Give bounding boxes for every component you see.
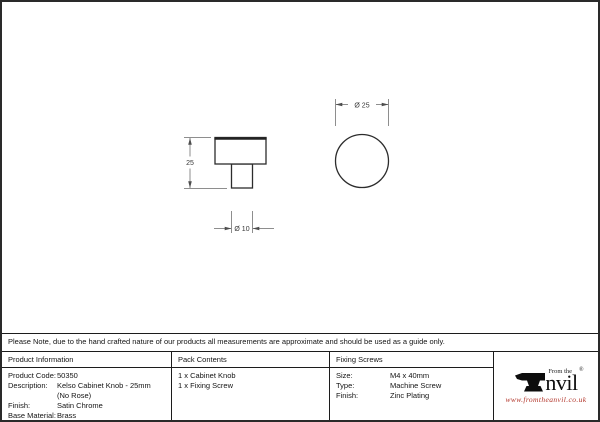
pack-contents-cell: 1 x Cabinet Knob 1 x Fixing Screw bbox=[172, 368, 330, 421]
registered-mark-icon: ® bbox=[579, 367, 584, 373]
product-information-cell: Product Code: 50350 Description: Kelso C… bbox=[2, 368, 172, 421]
knob-top-outline bbox=[336, 135, 389, 188]
spec-row: Description: Kelso Cabinet Knob - 25mm bbox=[8, 381, 171, 391]
spec-row: (No Rose) bbox=[8, 391, 171, 401]
top-view: Ø 25 bbox=[336, 99, 389, 188]
spec-row: Type: Machine Screw bbox=[336, 381, 493, 391]
spec-row: Product Code: 50350 bbox=[8, 371, 171, 381]
spec-sheet-page: 25 Ø 10 Ø 25 bbox=[0, 0, 600, 422]
fixing-screws-cell: Size: M4 x 40mm Type: Machine Screw Fini… bbox=[330, 368, 494, 421]
note-text: Please Note, due to the hand crafted nat… bbox=[8, 337, 445, 346]
fixing-screws-header: Fixing Screws bbox=[330, 352, 494, 368]
brand-url: www.fromtheanvil.co.uk bbox=[505, 395, 586, 404]
side-view: 25 Ø 10 bbox=[183, 138, 274, 234]
brand-name: nvil bbox=[545, 372, 577, 394]
brand-tagline: From the bbox=[548, 368, 572, 375]
arrow-left-icon bbox=[253, 227, 260, 231]
arrow-up-icon bbox=[188, 138, 192, 145]
arrow-right-icon bbox=[382, 103, 389, 107]
spec-row: Base Material: Brass bbox=[8, 411, 171, 421]
anvil-icon bbox=[514, 372, 546, 393]
arrow-left-icon bbox=[336, 103, 343, 107]
knob-head-outline bbox=[215, 138, 266, 165]
note-bar: Please Note, due to the hand crafted nat… bbox=[2, 333, 598, 352]
top-diameter-label: Ø 25 bbox=[354, 103, 369, 110]
stem-diameter-label: Ø 10 bbox=[234, 226, 249, 233]
pack-item: 1 x Fixing Screw bbox=[178, 381, 329, 391]
spec-table: Product Information Pack Contents Fixing… bbox=[2, 352, 598, 420]
brand-logo-row: nvil From the ® bbox=[514, 370, 577, 394]
spec-row: Finish: Satin Chrome bbox=[8, 401, 171, 411]
arrow-right-icon bbox=[225, 227, 232, 231]
pack-contents-header: Pack Contents bbox=[172, 352, 330, 368]
knob-stem-outline bbox=[232, 164, 253, 188]
product-information-header: Product Information bbox=[2, 352, 172, 368]
technical-drawing: 25 Ø 10 Ø 25 bbox=[2, 2, 598, 333]
spec-row: Finish: Zinc Plating bbox=[336, 391, 493, 401]
arrow-down-icon bbox=[188, 181, 192, 188]
brand-logo: nvil From the ® www.fromtheanvil.co.uk bbox=[494, 352, 598, 421]
height-dim-label: 25 bbox=[186, 160, 194, 167]
pack-item: 1 x Cabinet Knob bbox=[178, 371, 329, 381]
spec-row: Size: M4 x 40mm bbox=[336, 371, 493, 381]
